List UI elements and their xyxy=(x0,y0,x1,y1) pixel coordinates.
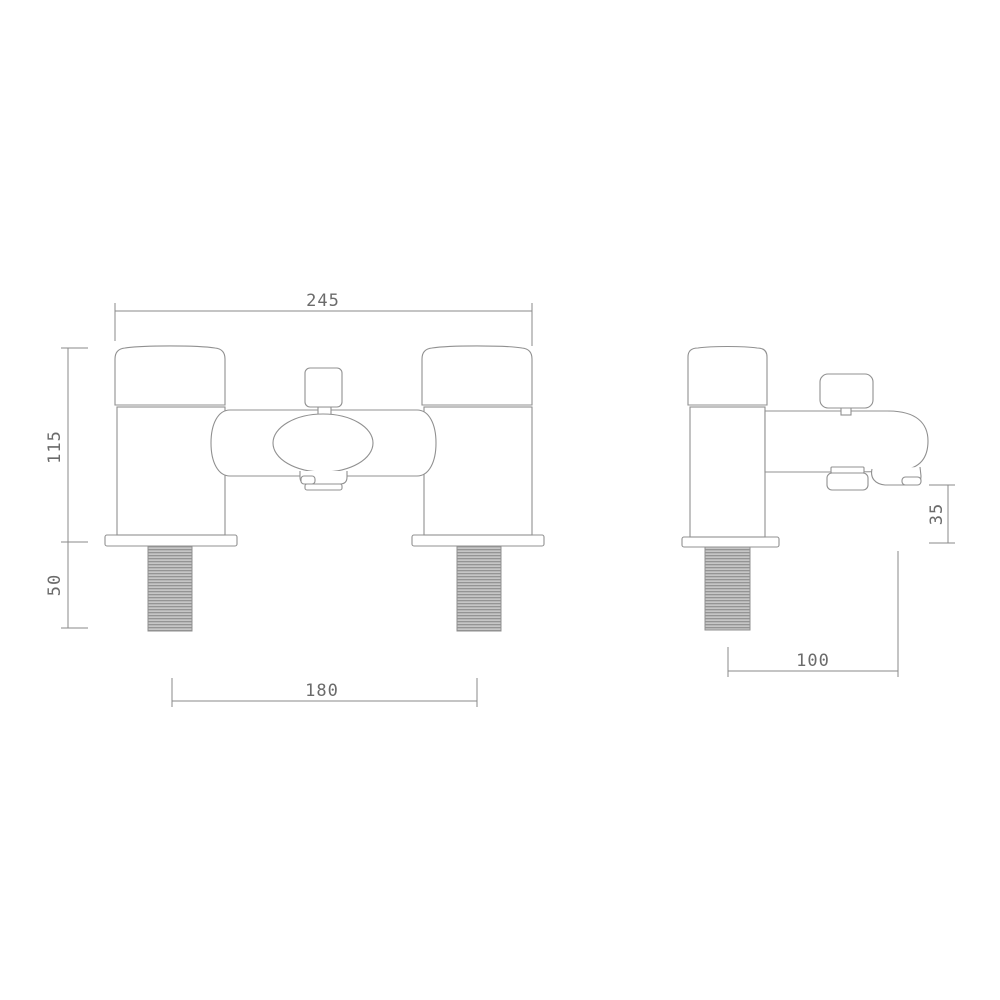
handle-right xyxy=(422,346,532,405)
diverter-knob-front xyxy=(305,368,342,407)
dim-body-height-and-thread: 115 50 xyxy=(45,348,88,628)
drawing-svg: 245 115 50 180 35 100 xyxy=(0,0,1000,1000)
dim-inlet-centres: 180 xyxy=(172,678,477,707)
body-column-side xyxy=(690,407,765,537)
body-column-left xyxy=(117,407,225,535)
dim-overall-width: 245 xyxy=(115,291,532,346)
threaded-tail-side xyxy=(705,547,750,630)
base-plate-side xyxy=(682,537,779,547)
front-left-pillar xyxy=(105,346,237,631)
handle-side xyxy=(688,347,767,406)
threaded-tail-right xyxy=(457,546,501,631)
dim-label-body-height: 115 xyxy=(45,430,65,464)
dim-spout-height: 35 xyxy=(927,485,955,543)
body-cap-ellipse xyxy=(273,414,373,472)
side-view xyxy=(682,347,928,631)
spout-body xyxy=(765,411,928,472)
front-view xyxy=(105,346,544,631)
threaded-tail-left xyxy=(148,546,192,631)
base-plate-left xyxy=(105,535,237,546)
dim-label-spout-reach: 100 xyxy=(796,651,830,671)
body-column-right xyxy=(424,407,532,535)
dim-label-spout-height: 35 xyxy=(927,503,947,525)
shower-hose-connector xyxy=(827,473,868,490)
dim-label-overall-width: 245 xyxy=(306,291,340,311)
handle-left xyxy=(115,346,225,405)
dim-label-thread-length: 50 xyxy=(45,574,65,596)
front-right-pillar xyxy=(412,346,544,631)
base-plate-right xyxy=(412,535,544,546)
dim-label-inlet-centres: 180 xyxy=(305,681,339,701)
front-mixer-body xyxy=(211,368,436,490)
diverter-knob-side xyxy=(820,374,873,408)
dim-spout-reach: 100 xyxy=(728,551,898,677)
aerator xyxy=(902,477,921,485)
connector-flange xyxy=(831,467,864,473)
outlet-notch-front xyxy=(301,476,315,484)
outlet-plate-front xyxy=(305,484,342,490)
technical-drawing: 245 115 50 180 35 100 xyxy=(0,0,1000,1000)
